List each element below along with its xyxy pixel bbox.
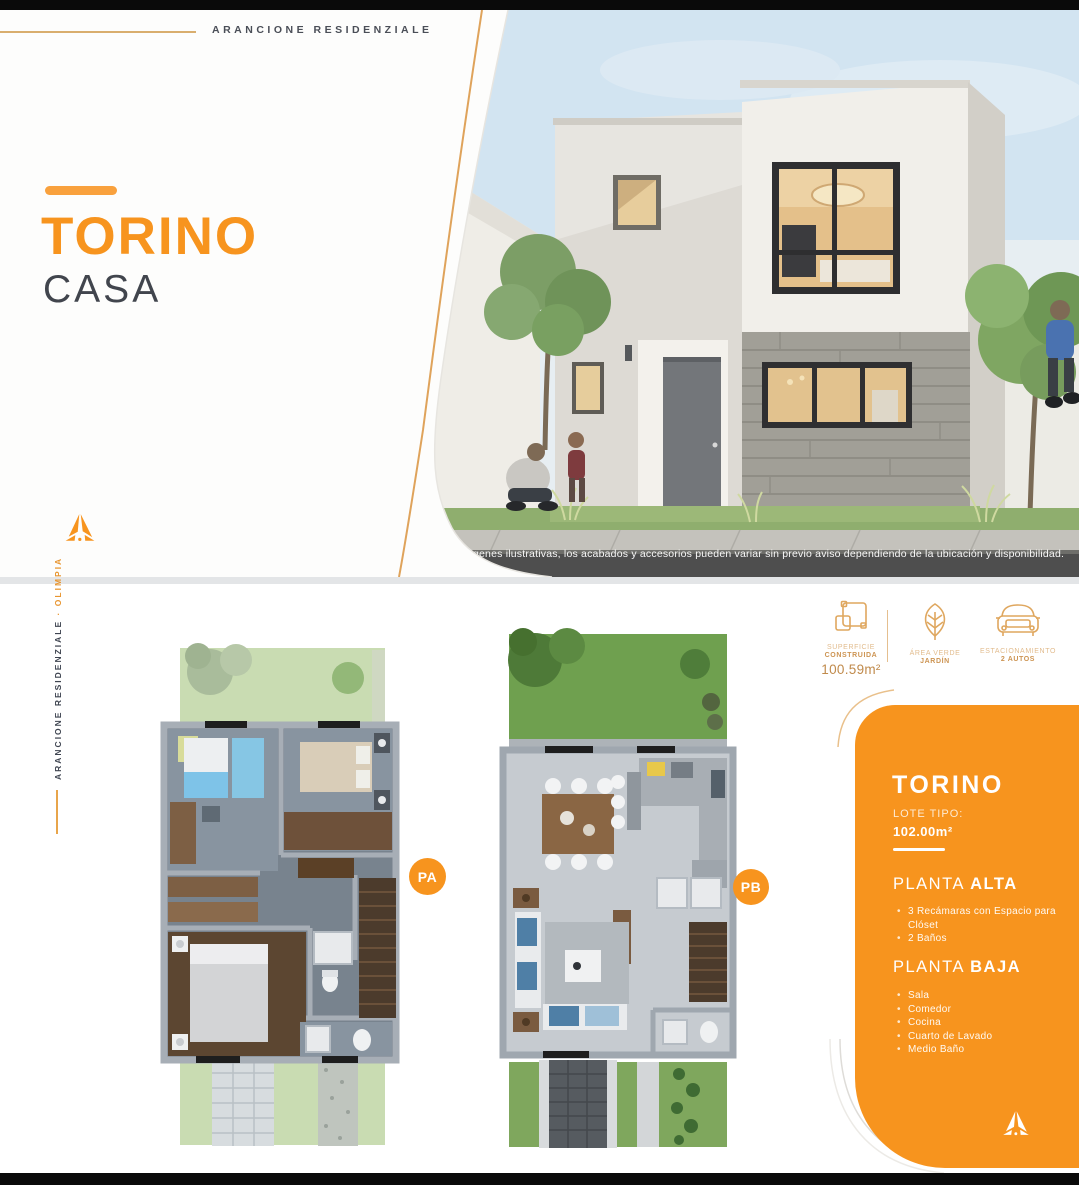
planta-baja-regular: PLANTA bbox=[893, 958, 970, 976]
arancione-logo-white-icon bbox=[1000, 1110, 1032, 1139]
planta-baja-bold: BAJA bbox=[970, 958, 1021, 976]
lot-type-label: LOTE TIPO: bbox=[893, 808, 963, 820]
planta-baja-item: Medio Baño bbox=[897, 1043, 1062, 1057]
feature-divider-line bbox=[887, 610, 888, 662]
bottom-black-bar bbox=[0, 1173, 1079, 1185]
floor-plan-pa-image bbox=[150, 630, 410, 1155]
vertical-brand-text: ARANCIONE RESIDENZIALE · OLIMPIA bbox=[53, 620, 63, 780]
vertical-brand-project: OLIMPIA bbox=[53, 557, 63, 606]
planta-alta-item: 3 Recámaras con Espacio para Clóset bbox=[897, 905, 1062, 932]
car-icon bbox=[994, 602, 1042, 640]
title-accent-dash bbox=[45, 186, 117, 195]
feature-parking-label1: ESTACIONAMIENTO bbox=[966, 648, 1070, 655]
hero-section: Imágenes ilustrativas, los acabados y ac… bbox=[0, 10, 1079, 577]
panel-underline bbox=[893, 848, 945, 851]
feature-parking-label2: 2 AUTOS bbox=[966, 656, 1070, 663]
planta-baja-item: Cocina bbox=[897, 1016, 1062, 1030]
section-divider bbox=[0, 577, 1079, 584]
planta-baja-item: Cuarto de Lavado bbox=[897, 1030, 1062, 1044]
planta-alta-heading: PLANTA ALTA bbox=[893, 875, 1018, 894]
planta-alta-list: 3 Recámaras con Espacio para Clóset 2 Ba… bbox=[897, 905, 1062, 946]
info-panel: TORINO LOTE TIPO: 102.00m² PLANTA ALTA 3… bbox=[855, 705, 1079, 1168]
top-black-bar bbox=[0, 0, 1079, 10]
feature-parking: ESTACIONAMIENTO 2 AUTOS bbox=[966, 602, 1070, 663]
vertical-accent-rule bbox=[56, 790, 58, 834]
planta-alta-item: 2 Baños bbox=[897, 932, 1062, 946]
photo-caption: Imágenes ilustrativas, los acabados y ac… bbox=[450, 548, 1069, 560]
plan-badge-pa: PA bbox=[409, 858, 446, 895]
area-icon bbox=[833, 600, 869, 636]
feature-surface-label1: SUPERFICIE bbox=[806, 644, 896, 651]
brochure-page: Imágenes ilustrativas, los acabados y ac… bbox=[0, 0, 1079, 1185]
floor-plan-pb-image bbox=[487, 622, 752, 1157]
lot-type-value: 102.00m² bbox=[893, 824, 953, 839]
house-photo: Imágenes ilustrativas, los acabados y ac… bbox=[420, 10, 1079, 577]
leaf-icon bbox=[918, 602, 952, 642]
plan-badge-pb: PB bbox=[733, 869, 769, 905]
feature-surface-label2: CONSTRUIDA bbox=[806, 652, 896, 659]
plans-section: ARANCIONE RESIDENZIALE · OLIMPIA bbox=[0, 584, 1079, 1173]
vertical-brand-name: ARANCIONE RESIDENZIALE bbox=[53, 620, 63, 780]
arancione-logo-icon bbox=[62, 512, 98, 546]
house-render-illustration bbox=[420, 10, 1079, 577]
panel-title: TORINO bbox=[892, 771, 1004, 800]
feature-surface: SUPERFICIE CONSTRUIDA 100.59m² bbox=[806, 600, 896, 677]
vertical-brand-separator: · bbox=[53, 611, 63, 616]
model-title: TORINO bbox=[41, 206, 258, 267]
brand-rule-line bbox=[0, 31, 196, 33]
planta-baja-list: Sala Comedor Cocina Cuarto de Lavado Med… bbox=[897, 989, 1062, 1057]
feature-surface-value: 100.59m² bbox=[806, 662, 896, 677]
planta-baja-item: Comedor bbox=[897, 1003, 1062, 1017]
planta-alta-regular: PLANTA bbox=[893, 875, 970, 893]
model-subtitle: CASA bbox=[43, 268, 161, 312]
planta-baja-item: Sala bbox=[897, 989, 1062, 1003]
planta-alta-bold: ALTA bbox=[970, 875, 1018, 893]
planta-baja-heading: PLANTA BAJA bbox=[893, 958, 1021, 977]
brand-name: ARANCIONE RESIDENZIALE bbox=[212, 24, 433, 36]
